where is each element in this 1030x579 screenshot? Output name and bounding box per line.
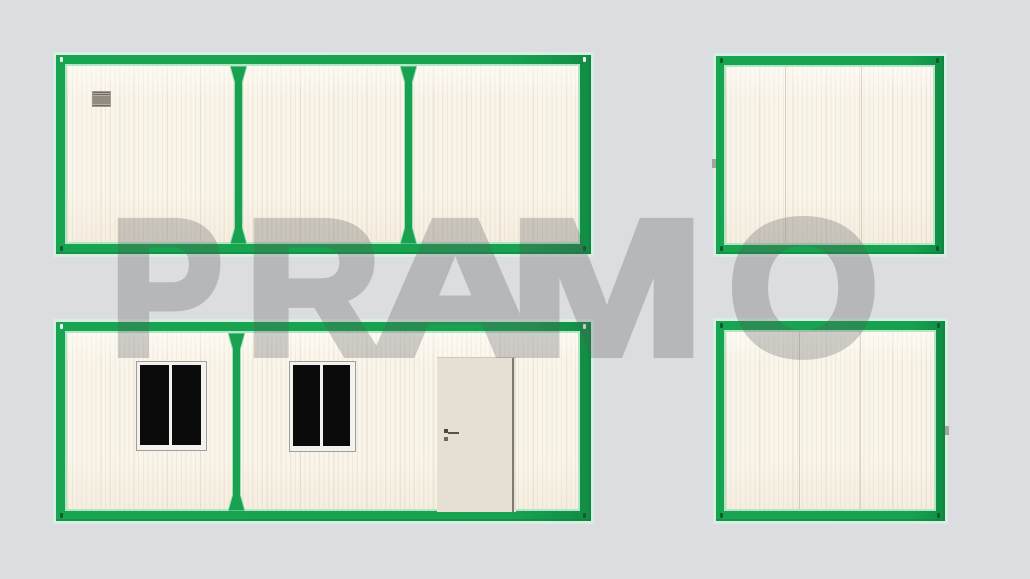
svg-text:M: M [509,181,704,395]
svg-text:O: O [728,180,879,395]
svg-text:R: R [245,181,381,395]
svg-text:P: P [110,181,223,395]
